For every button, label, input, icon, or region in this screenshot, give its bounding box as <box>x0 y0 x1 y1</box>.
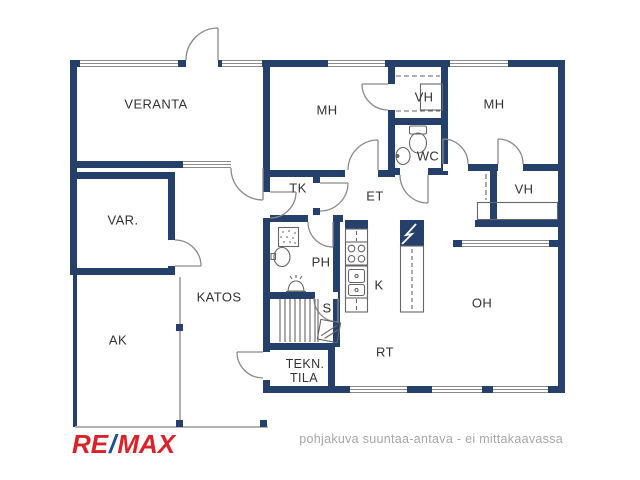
door-swing-icon <box>175 240 201 266</box>
door-swing-icon <box>348 140 378 170</box>
door-swing-icon <box>237 352 263 378</box>
sauna-glass-door-icon <box>317 319 340 342</box>
room-label-tk: TK <box>289 181 306 196</box>
door-swing-icon <box>231 168 263 200</box>
fixtures-overlay <box>0 0 640 480</box>
room-label-ak: AK <box>109 333 127 348</box>
room-label-ph: PH <box>312 255 331 270</box>
door-swing-icon <box>320 183 348 211</box>
disclaimer-text: pohjakuva suuntaa-antava - ei mittakaava… <box>299 432 563 446</box>
room-label-wc: WC <box>417 149 439 164</box>
stove-icon <box>346 242 368 265</box>
room-label-tekn-1: TEKN. <box>286 357 325 371</box>
shower-icon <box>279 228 299 247</box>
floor-plan: VERANTA MH VH MH WC TK ET VH VAR. PH K K… <box>0 0 640 480</box>
room-label-tekn-2: TILA <box>290 371 318 385</box>
door-swing-icon <box>400 175 428 203</box>
door-swing-icon <box>443 139 468 164</box>
door-swing-icon <box>498 139 523 164</box>
door-swing-icon <box>270 192 296 218</box>
room-label-vh-right: VH <box>515 182 534 197</box>
ph-sink-icon <box>271 248 290 267</box>
room-label-var: VAR. <box>108 213 139 228</box>
remax-logo: RE/MAX <box>72 429 175 460</box>
room-label-oh: OH <box>472 296 492 311</box>
logo-slash: / <box>108 429 117 459</box>
wc-sink-icon <box>396 148 410 165</box>
tall-cabinet <box>401 246 424 312</box>
fireplace-icon <box>402 224 416 244</box>
room-label-vh-top: VH <box>415 90 434 105</box>
room-label-et: ET <box>366 189 383 204</box>
door-swing-icon <box>186 28 218 60</box>
room-label-katos: KATOS <box>197 290 242 305</box>
room-label-s: S <box>322 301 331 316</box>
sauna-benches-icon <box>280 299 318 342</box>
door-swing-icon <box>308 222 333 247</box>
room-label-veranta: VERANTA <box>124 97 187 112</box>
kitchen-sink-icon <box>346 266 368 298</box>
room-label-mh-left: MH <box>316 103 337 118</box>
logo-max: MAX <box>117 429 175 459</box>
room-label-rt: RT <box>376 345 394 360</box>
door-swing-icon <box>362 84 388 110</box>
room-label-mh-right: MH <box>483 97 504 112</box>
logo-re: RE <box>72 429 108 459</box>
room-label-k: K <box>374 278 383 293</box>
sauna-stove-icon <box>286 275 306 292</box>
